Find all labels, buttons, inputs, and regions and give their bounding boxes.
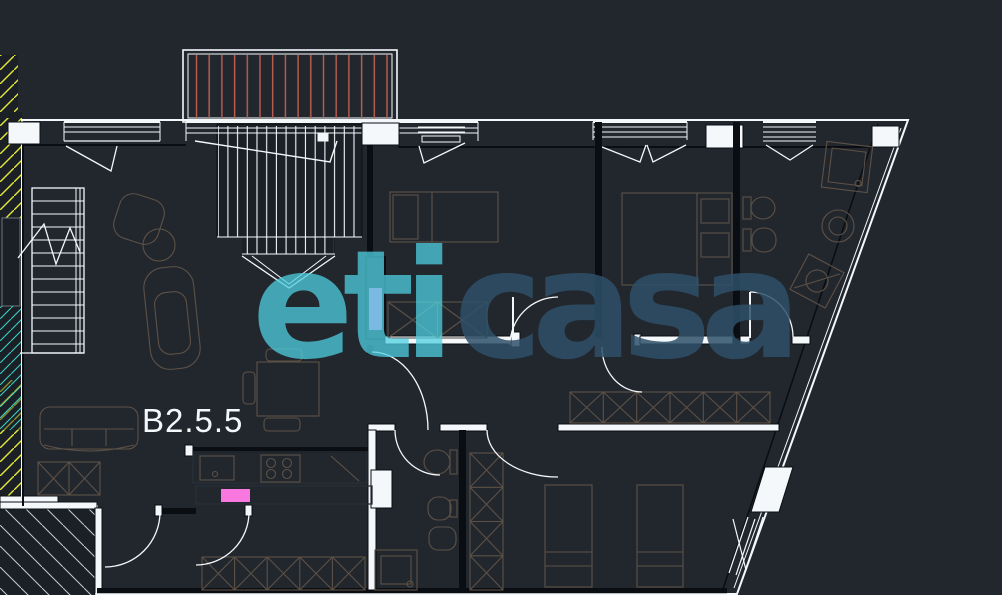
- unit-label: B2.5.5: [142, 402, 243, 439]
- watermark-eti: eti: [252, 219, 444, 393]
- terrace-deck: [183, 50, 397, 122]
- floor-plan-canvas: eticasa B2.5.5: [0, 0, 1002, 595]
- watermark: eticasa: [252, 219, 791, 393]
- bottom-wall: [97, 588, 727, 594]
- watermark-casa: casa: [454, 219, 791, 393]
- highlight-island-pink: [221, 489, 250, 502]
- pier-center: [362, 123, 399, 145]
- common-area-hatched-block: [0, 502, 102, 595]
- pier-left: [8, 122, 40, 144]
- pier-corner: [872, 126, 899, 147]
- floor-plan-page: eticasa B2.5.5: [0, 0, 1002, 595]
